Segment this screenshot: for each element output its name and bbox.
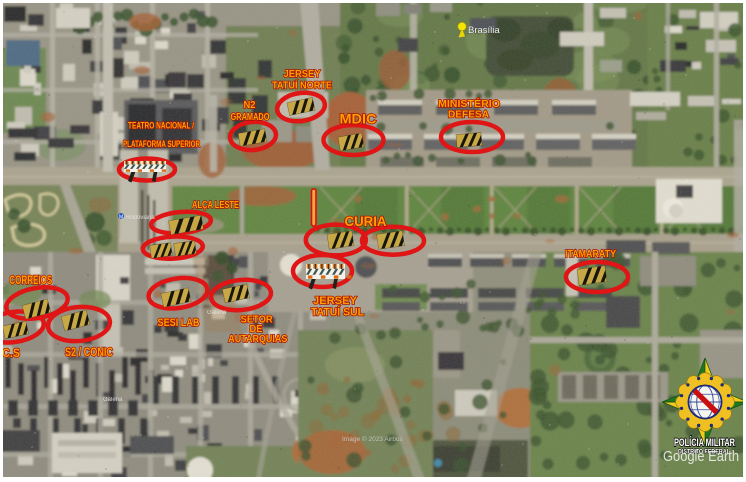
svg-text:Image © 2023 Airbus: Image © 2023 Airbus: [342, 435, 404, 443]
svg-text:JERSEY: JERSEY: [313, 295, 358, 307]
svg-text:TATUÍ NORTE: TATUÍ NORTE: [272, 79, 332, 92]
svg-text:GRAMADO: GRAMADO: [231, 111, 270, 123]
svg-text:TATUÍ SUL: TATUÍ SUL: [311, 306, 364, 319]
svg-text:JERSEY: JERSEY: [284, 68, 321, 80]
svg-text:AUTARQUIAS: AUTARQUIAS: [228, 334, 287, 345]
svg-text:CURIA: CURIA: [345, 214, 387, 229]
svg-text:Galeria: Galeria: [207, 310, 227, 316]
svg-text:MDIC: MDIC: [340, 111, 377, 127]
svg-text:Galeria: Galeria: [103, 397, 123, 403]
svg-text:DEFESA: DEFESA: [448, 109, 489, 121]
svg-text:Rodoviária: Rodoviária: [126, 215, 155, 221]
svg-text:POLÍCIA MILITAR: POLÍCIA MILITAR: [674, 436, 735, 449]
svg-text:PLATAFORMA SUPERIOR: PLATAFORMA SUPERIOR: [123, 139, 200, 150]
svg-text:SESI LAB: SESI LAB: [158, 317, 200, 329]
svg-text:ALÇA LESTE: ALÇA LESTE: [192, 199, 239, 211]
svg-text:N2: N2: [244, 99, 256, 111]
svg-text:TEATRO NACIONAL /: TEATRO NACIONAL /: [128, 121, 194, 132]
svg-text:Google Earth: Google Earth: [663, 449, 739, 465]
svg-text:S2 / CONIC: S2 / CONIC: [65, 345, 113, 359]
svg-text:ITAMARATY: ITAMARATY: [565, 248, 616, 260]
svg-text:Brasília: Brasília: [468, 25, 500, 36]
svg-text:CORREIOS: CORREIOS: [9, 273, 52, 287]
svg-text:M: M: [119, 215, 123, 221]
svg-text:S.C.S: S.C.S: [3, 346, 20, 360]
